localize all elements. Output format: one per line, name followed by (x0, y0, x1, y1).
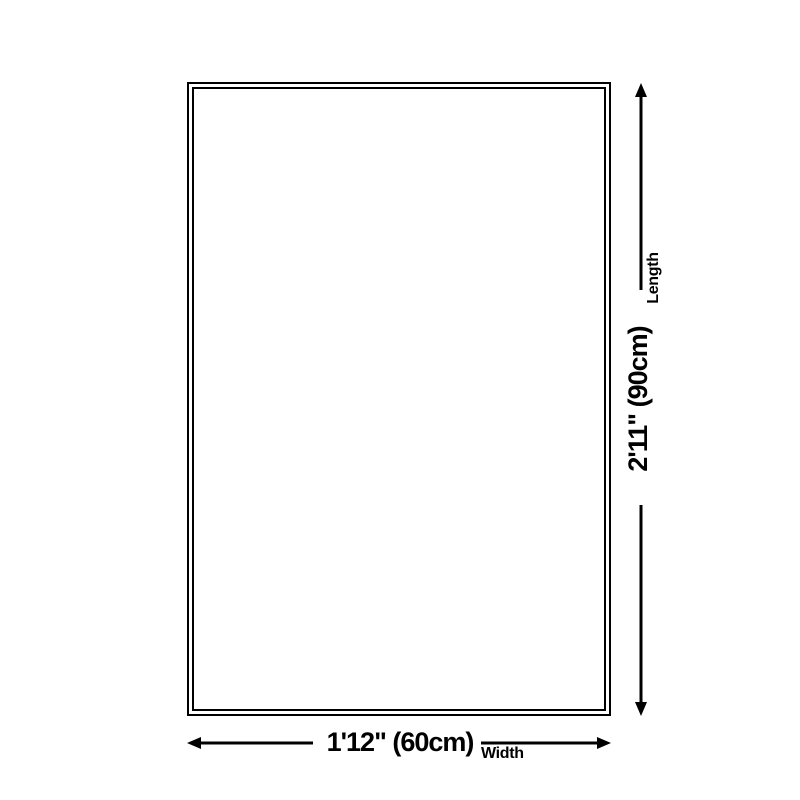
rug-outline (187, 82, 611, 716)
rug-inner-border (192, 87, 606, 711)
rug-size-diagram: 2'11" (90cm) Length 1'12" (60cm) Width (0, 0, 800, 800)
arrow-down-icon (635, 702, 647, 716)
arrow-up-icon (635, 83, 647, 97)
arrow-left-icon (187, 737, 201, 749)
width-value-label: 1'12" (60cm) (300, 728, 500, 756)
length-value-label: 2'11" (90cm) (624, 299, 652, 499)
length-axis-label: Length (646, 248, 662, 308)
arrow-right-icon (597, 737, 611, 749)
width-axis-label: Width (481, 746, 524, 762)
